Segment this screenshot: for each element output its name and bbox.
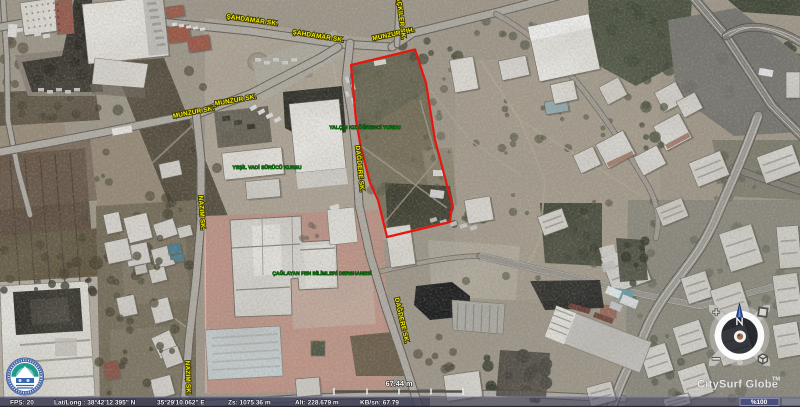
svg-text:ÇAĞLAYAN FEN BİLİMLERİ DERSHAN: ÇAĞLAYAN FEN BİLİMLERİ DERSHANESİ (272, 270, 372, 277)
svg-text:Lat/Long : 38°42'12.395" N: Lat/Long : 38°42'12.395" N (54, 400, 136, 407)
svg-text:—: — (211, 104, 217, 111)
svg-text:YEŞİL VADİ SÜRÜCÜ KURSU: YEŞİL VADİ SÜRÜCÜ KURSU (232, 164, 302, 171)
svg-text:KB/sn: 67.79: KB/sn: 67.79 (360, 400, 399, 407)
svg-text:YALÇIN KIZ ÖĞRENCİ YURDU: YALÇIN KIZ ÖĞRENCİ YURDU (329, 124, 401, 131)
svg-text:%100: %100 (751, 399, 768, 406)
svg-text:35°29'10.062" E: 35°29'10.062" E (157, 400, 205, 407)
svg-text:CitySurf Globe: CitySurf Globe (697, 379, 778, 391)
svg-text:Zs: 1075.36 m: Zs: 1075.36 m (228, 400, 271, 407)
svg-text:NAZIM SK.: NAZIM SK. (183, 361, 191, 396)
svg-text:TM: TM (772, 377, 780, 383)
svg-text:FPS: 20: FPS: 20 (10, 400, 34, 407)
svg-text:Alt: 228.679 m: Alt: 228.679 m (295, 400, 339, 407)
svg-text:67.44 m: 67.44 m (385, 379, 413, 388)
